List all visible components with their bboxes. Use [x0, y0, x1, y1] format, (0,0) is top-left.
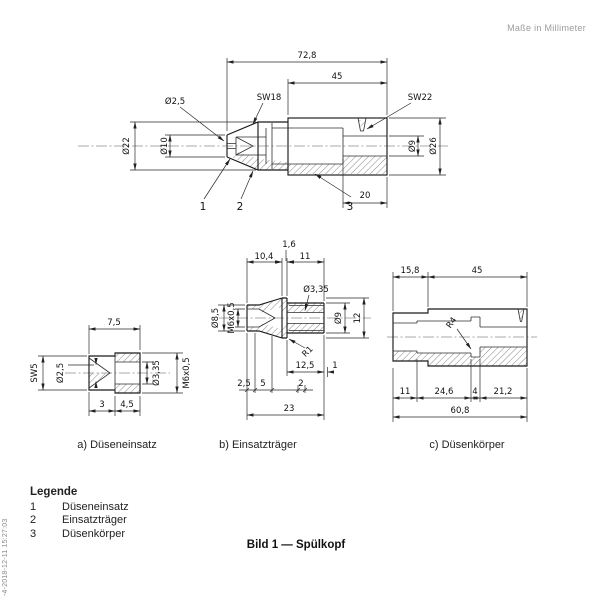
part-b-caption: b) Einsatzträger: [219, 439, 297, 451]
legend-item-2: 2 Einsatzträger: [30, 514, 129, 528]
legend: Legende 1 Düseneinsatz 2 Einsatzträger 3…: [30, 486, 129, 541]
part-c-hatching: [393, 310, 527, 366]
dim-a-hole: Ø2,5: [55, 363, 66, 383]
legend-item-number: 3: [30, 528, 62, 542]
legend-item-number: 2: [30, 514, 62, 528]
dim-b-2: 2: [298, 379, 303, 389]
callout-1: 1: [200, 201, 207, 213]
legend-item-label: Einsatzträger: [62, 514, 127, 528]
assembly-drawing: 72,8 45 SW18 SW22 Ø2,5 Ø22 Ø10 Ø9 Ø26 20…: [20, 40, 470, 225]
dim-a-length: 7,5: [107, 318, 121, 328]
dim-a-len-4-5: 4,5: [120, 400, 134, 410]
dim-b-11: 11: [300, 252, 311, 262]
part-b-drawing: 1,6 10,4 11 Ø8,5 M6x0,5 Ø3,35 Ø9 12 R1 1…: [205, 235, 380, 440]
dim-b-d9: Ø9: [333, 312, 344, 324]
dim-b-thread: M6x0,5: [227, 302, 237, 333]
dim-body-od: Ø26: [428, 137, 439, 155]
dim-b-5: 5: [260, 379, 265, 389]
dim-b-d8-5: Ø8,5: [210, 308, 221, 328]
label-sw18: SW18: [257, 93, 282, 103]
dim-tip-hole: Ø2,5: [165, 96, 185, 107]
part-c-drawing: 15,8 45 R4 11 24,6 4 21,2 60,8: [385, 250, 580, 435]
dim-b-12: 12: [353, 313, 363, 324]
part-c-dimension-labels: 15,8 45 R4 11 24,6 4 21,2 60,8: [400, 266, 513, 416]
dim-b-23: 23: [284, 404, 295, 414]
dim-c-21-2: 21,2: [494, 387, 513, 397]
callout-2: 2: [237, 201, 244, 213]
legend-item-3: 3 Düsenkörper: [30, 528, 129, 542]
dim-c-24-6: 24,6: [435, 387, 454, 397]
document-page: { "page": { "units_note": "Maße in Milli…: [0, 0, 600, 600]
part-a-caption: a) Düseneinsatz: [77, 439, 157, 451]
legend-item-1: 1 Düseneinsatz: [30, 501, 129, 515]
dim-a-thread: M6x0,5: [182, 357, 192, 388]
part-c-caption: c) Düsenkörper: [429, 439, 504, 451]
dim-c-11: 11: [400, 387, 411, 397]
dim-counterbore-len: 20: [360, 191, 371, 201]
legend-item-number: 1: [30, 501, 62, 515]
dim-total-length: 72,8: [298, 51, 317, 61]
dim-tip-od: Ø10: [159, 137, 170, 155]
dim-cap-od: Ø22: [121, 137, 132, 155]
dim-a-len-3: 3: [99, 400, 104, 410]
callout-3: 3: [347, 201, 354, 213]
dim-body-length: 45: [332, 72, 343, 82]
legend-item-label: Düsenkörper: [62, 528, 125, 542]
dim-b-2-5: 2,5: [237, 379, 251, 389]
timestamp-watermark: -4-2018-12-11 15:27:03: [2, 519, 9, 596]
figure-caption: Bild 1 — Spülkopf: [247, 539, 345, 551]
legend-title: Legende: [30, 486, 129, 500]
dim-b-10-4: 10,4: [255, 252, 274, 262]
dim-b-1-6: 1,6: [282, 240, 296, 250]
dim-bore: Ø9: [407, 140, 418, 152]
legend-item-label: Düseneinsatz: [62, 501, 129, 515]
label-sw22: SW22: [408, 93, 433, 103]
dim-c-15-8: 15,8: [401, 266, 420, 276]
dim-b-d3-35: Ø3,35: [303, 284, 329, 295]
dim-c-45: 45: [472, 266, 483, 276]
part-a-dimension-labels: 7,5 SW5 Ø2,5 Ø3,35 M6x0,5 3 4,5: [30, 318, 192, 410]
assembly-dimension-labels: 72,8 45 SW18 SW22 Ø2,5 Ø22 Ø10 Ø9 Ø26 20…: [121, 51, 439, 213]
dim-c-60-8: 60,8: [451, 406, 470, 416]
dim-c-4: 4: [472, 387, 477, 397]
label-a-sw5: SW5: [30, 363, 40, 382]
dim-b-12-5: 12,5: [296, 361, 315, 371]
units-note: Maße in Millimeter: [507, 23, 586, 33]
dim-a-bore: Ø3,35: [151, 360, 162, 386]
dim-b-1: 1: [332, 361, 337, 371]
part-b-dimension-lines: [218, 250, 369, 420]
part-a-drawing: 7,5 SW5 Ø2,5 Ø3,35 M6x0,5 3 4,5: [20, 312, 210, 432]
label-c-r4: R4: [445, 315, 460, 330]
